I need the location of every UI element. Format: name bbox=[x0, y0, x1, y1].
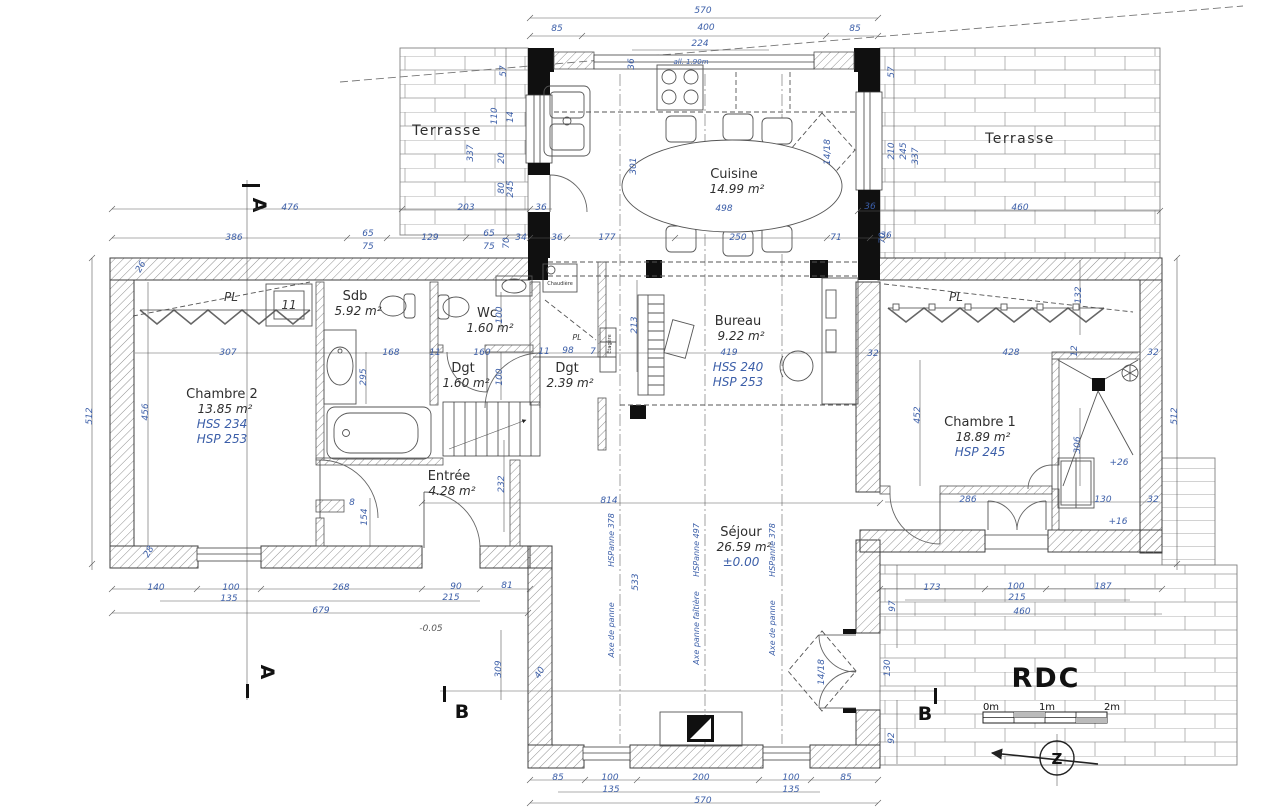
dimension-label: 135 bbox=[220, 594, 237, 604]
dimension-label: 70 bbox=[502, 237, 512, 249]
section-marker-b-right: B bbox=[918, 703, 932, 725]
dimension-label: 309 bbox=[494, 660, 504, 677]
closet-chambre1 bbox=[884, 284, 1133, 322]
dimension-label: 130 bbox=[1094, 495, 1111, 505]
dimension-label: 386 bbox=[225, 233, 242, 243]
dimension-label: 232 bbox=[497, 475, 507, 492]
dimension-label: 70 bbox=[878, 232, 888, 244]
dimension-label: 337 bbox=[466, 144, 476, 161]
dimension-label: 135 bbox=[602, 785, 619, 795]
dimension-label: 215 bbox=[442, 593, 459, 603]
dimension-label: 65 bbox=[362, 229, 374, 239]
dimension-label: 533 bbox=[631, 573, 641, 590]
room-height-label: HSS 234 bbox=[197, 417, 248, 431]
dimension-label: 11 bbox=[538, 347, 549, 357]
scale-1m: 1m bbox=[1039, 702, 1055, 713]
scale-bar bbox=[983, 712, 1107, 723]
dimension-label: 130 bbox=[883, 659, 893, 676]
annotation-label: Axe de panne bbox=[768, 600, 777, 656]
dimension-label: 215 bbox=[1008, 593, 1025, 603]
dimension-label: 36 bbox=[864, 202, 876, 212]
staircase bbox=[443, 402, 540, 456]
dimension-label: 132 bbox=[1074, 286, 1084, 303]
dimension-label: 498 bbox=[715, 204, 732, 214]
desk-icon bbox=[780, 278, 858, 404]
dimension-label: 57 bbox=[499, 65, 509, 77]
section-marker-a-top: A bbox=[248, 198, 270, 213]
dimension-label: 32 bbox=[867, 349, 879, 359]
room-label: Entrée bbox=[428, 469, 471, 484]
dimension-label: 173 bbox=[923, 583, 940, 593]
fireplace-icon bbox=[660, 712, 742, 746]
kitchen-counter bbox=[554, 72, 858, 112]
dimension-label: 814 bbox=[600, 496, 617, 506]
dimension-label: 12 bbox=[1070, 345, 1080, 357]
toilet-wc-icon bbox=[438, 295, 469, 319]
dimension-label: 213 bbox=[630, 316, 640, 333]
room-area-label: 4.28 m² bbox=[428, 484, 475, 498]
piano-icon bbox=[638, 295, 694, 395]
dimension-label: +26 bbox=[1110, 458, 1129, 468]
dimension-label: 187 bbox=[1094, 582, 1111, 592]
dimension-label: 337 bbox=[911, 147, 921, 164]
annotation-label: Chaudière bbox=[547, 280, 573, 287]
stove-icon bbox=[657, 65, 703, 110]
dimension-label: 100 bbox=[495, 306, 505, 323]
dimension-label: 177 bbox=[598, 233, 615, 243]
dimension-label: -0.05 bbox=[419, 624, 443, 634]
room-label: Terrasse bbox=[411, 123, 482, 139]
room-area-label: 1.60 m² bbox=[442, 376, 489, 390]
dimension-label: 140 bbox=[147, 583, 164, 593]
dimension-label: 8 bbox=[349, 498, 355, 508]
room-area-label: 18.89 m² bbox=[956, 430, 1011, 444]
dimension-label: 160 bbox=[473, 348, 490, 358]
dimension-label: 210 bbox=[887, 142, 897, 159]
dimension-label: 32 bbox=[1147, 495, 1159, 505]
scale-2m: 2m bbox=[1104, 702, 1120, 713]
dimension-label: 460 bbox=[1011, 203, 1028, 213]
room-area-label: 13.85 m² bbox=[198, 402, 253, 416]
annotation-label: HSPanne 497 bbox=[692, 522, 701, 577]
dimension-label: 81 bbox=[501, 581, 512, 591]
boiler-icon bbox=[543, 264, 577, 292]
dimension-label: 85 bbox=[552, 773, 564, 783]
room-height-label: HSP 245 bbox=[955, 445, 1006, 459]
room-label: Wc bbox=[477, 306, 497, 321]
room-area-label: 5.92 m² bbox=[334, 304, 381, 318]
room-label: Chambre 2 bbox=[186, 387, 258, 402]
dimension-label: 419 bbox=[720, 348, 737, 358]
room-height-label: ±0.00 bbox=[723, 555, 760, 569]
bathtub-icon bbox=[327, 407, 431, 459]
room-area-label: 9.22 m² bbox=[717, 329, 764, 343]
annotation-label: Étagère bbox=[605, 334, 613, 353]
dimension-label: 224 bbox=[691, 39, 708, 49]
dimension-label: 203 bbox=[457, 203, 474, 213]
dimension-label: 110 bbox=[490, 107, 500, 124]
dimension-label: 100 bbox=[782, 773, 799, 783]
dimension-label: 476 bbox=[281, 203, 298, 213]
terrace-right bbox=[880, 48, 1160, 258]
dimension-label: 307 bbox=[219, 348, 236, 358]
dimension-label: 100 bbox=[601, 773, 618, 783]
dimension-label: 36 bbox=[627, 58, 637, 70]
room-label: Sdb bbox=[343, 289, 368, 304]
dimension-label: 245 bbox=[506, 180, 516, 197]
dimension-label: 245 bbox=[899, 142, 909, 159]
north-letter: Z bbox=[1052, 750, 1063, 768]
dimension-label: 75 bbox=[483, 242, 495, 252]
room-height-label: HSS 240 bbox=[713, 360, 764, 374]
dimension-label: 135 bbox=[782, 785, 799, 795]
scale-0m: 0m bbox=[983, 702, 999, 713]
annotation-label: Axe panne faîtière bbox=[691, 591, 701, 666]
annotation-label: PL bbox=[224, 290, 238, 304]
annotation-label: HSPanne 378 bbox=[607, 513, 616, 567]
annotation-label: PL bbox=[572, 333, 581, 342]
section-marker-a-bottom: A bbox=[256, 665, 278, 680]
dimension-label: 7 bbox=[590, 347, 596, 357]
dimension-label: 168 bbox=[382, 348, 399, 358]
dimension-label: 32 bbox=[1147, 348, 1159, 358]
dimension-label: 57 bbox=[887, 66, 897, 78]
dimension-label: 512 bbox=[85, 407, 95, 424]
section-line-b bbox=[440, 686, 937, 704]
section-marker-b-left: B bbox=[455, 701, 469, 723]
room-area-label: 1.60 m² bbox=[466, 321, 513, 335]
room-height-label: HSP 253 bbox=[713, 375, 764, 389]
room-area-label: 14.99 m² bbox=[710, 182, 765, 196]
dimension-label: 301 bbox=[629, 157, 639, 174]
dimension-label: 512 bbox=[1170, 407, 1180, 424]
washbasin-icon bbox=[324, 330, 356, 404]
dimension-label: 570 bbox=[694, 6, 711, 16]
floor-plan-drawing: A A B B RDC 0m 1m 2m bbox=[0, 0, 1277, 812]
dimension-label: 100 bbox=[222, 583, 239, 593]
dimension-label: 75 bbox=[362, 242, 374, 252]
dimension-label: 129 bbox=[421, 233, 438, 243]
dimension-label: 90 bbox=[450, 582, 462, 592]
dimension-label: 71 bbox=[830, 233, 841, 243]
room-label: Chambre 1 bbox=[944, 415, 1016, 430]
dimension-label: 65 bbox=[483, 229, 495, 239]
dimension-label: 36 bbox=[551, 233, 563, 243]
exterior-steps bbox=[1162, 458, 1215, 565]
annotation-label: Axe de panne bbox=[607, 602, 616, 658]
annotation-label: 11 bbox=[281, 298, 296, 312]
dimension-label: 286 bbox=[959, 495, 976, 505]
dimension-label: 250 bbox=[729, 233, 746, 243]
dimension-label: 268 bbox=[332, 583, 349, 593]
room-label: Terrasse bbox=[984, 131, 1055, 147]
dimension-label: 85 bbox=[551, 24, 563, 34]
dimension-label: 85 bbox=[840, 773, 852, 783]
dimension-label: 570 bbox=[694, 796, 711, 806]
room-label: Séjour bbox=[720, 525, 762, 540]
annotation-label: PL bbox=[949, 290, 963, 304]
dimension-label: 428 bbox=[1002, 348, 1019, 358]
dimension-label: 97 bbox=[888, 600, 898, 612]
dimension-label: 100 bbox=[1007, 582, 1024, 592]
room-label: Cuisine bbox=[710, 167, 758, 182]
room-label: Dgt bbox=[451, 361, 474, 376]
dimension-label: 452 bbox=[913, 406, 923, 423]
room-area-label: 2.39 m² bbox=[546, 376, 593, 390]
dimension-label: 14 bbox=[506, 111, 516, 123]
room-label: Bureau bbox=[715, 314, 761, 329]
dimension-label: 14/18 bbox=[817, 659, 827, 685]
toilet-sdb-icon bbox=[380, 294, 415, 318]
dimension-label: 34 bbox=[515, 233, 527, 243]
shower-room bbox=[1058, 360, 1138, 508]
dimension-label: 92 bbox=[887, 732, 897, 744]
level-title: RDC bbox=[1011, 663, 1080, 694]
dimension-label: 36 bbox=[535, 203, 547, 213]
dimension-label: 100 bbox=[495, 368, 505, 385]
dimension-label: 456 bbox=[141, 403, 151, 420]
interior-partitions bbox=[316, 262, 1140, 546]
closet-dgt2 bbox=[545, 300, 596, 340]
annotation-label: all. 1.90m bbox=[673, 58, 708, 66]
room-area-label: 26.59 m² bbox=[717, 540, 772, 554]
room-height-label: HSP 253 bbox=[197, 432, 248, 446]
dimension-label: 14/18 bbox=[823, 139, 833, 165]
annotation-label: HSPanne 378 bbox=[768, 523, 777, 577]
dimension-label: 679 bbox=[312, 606, 329, 616]
dimension-label: 11 bbox=[429, 348, 440, 358]
room-label: Dgt bbox=[555, 361, 578, 376]
dimension-label: 400 bbox=[697, 23, 714, 33]
dimension-label: 98 bbox=[562, 346, 574, 356]
dimension-label: 295 bbox=[359, 368, 369, 385]
dimension-label: 20 bbox=[497, 152, 507, 164]
dimension-label: +16 bbox=[1109, 517, 1128, 527]
dimension-label: 460 bbox=[1013, 607, 1030, 617]
dimension-label: 85 bbox=[849, 24, 861, 34]
dimension-label: 306 bbox=[1073, 436, 1083, 453]
dimension-label: 154 bbox=[360, 508, 370, 525]
floor-plan-page: A A B B RDC 0m 1m 2m bbox=[0, 0, 1277, 812]
dimension-label: 200 bbox=[692, 773, 709, 783]
